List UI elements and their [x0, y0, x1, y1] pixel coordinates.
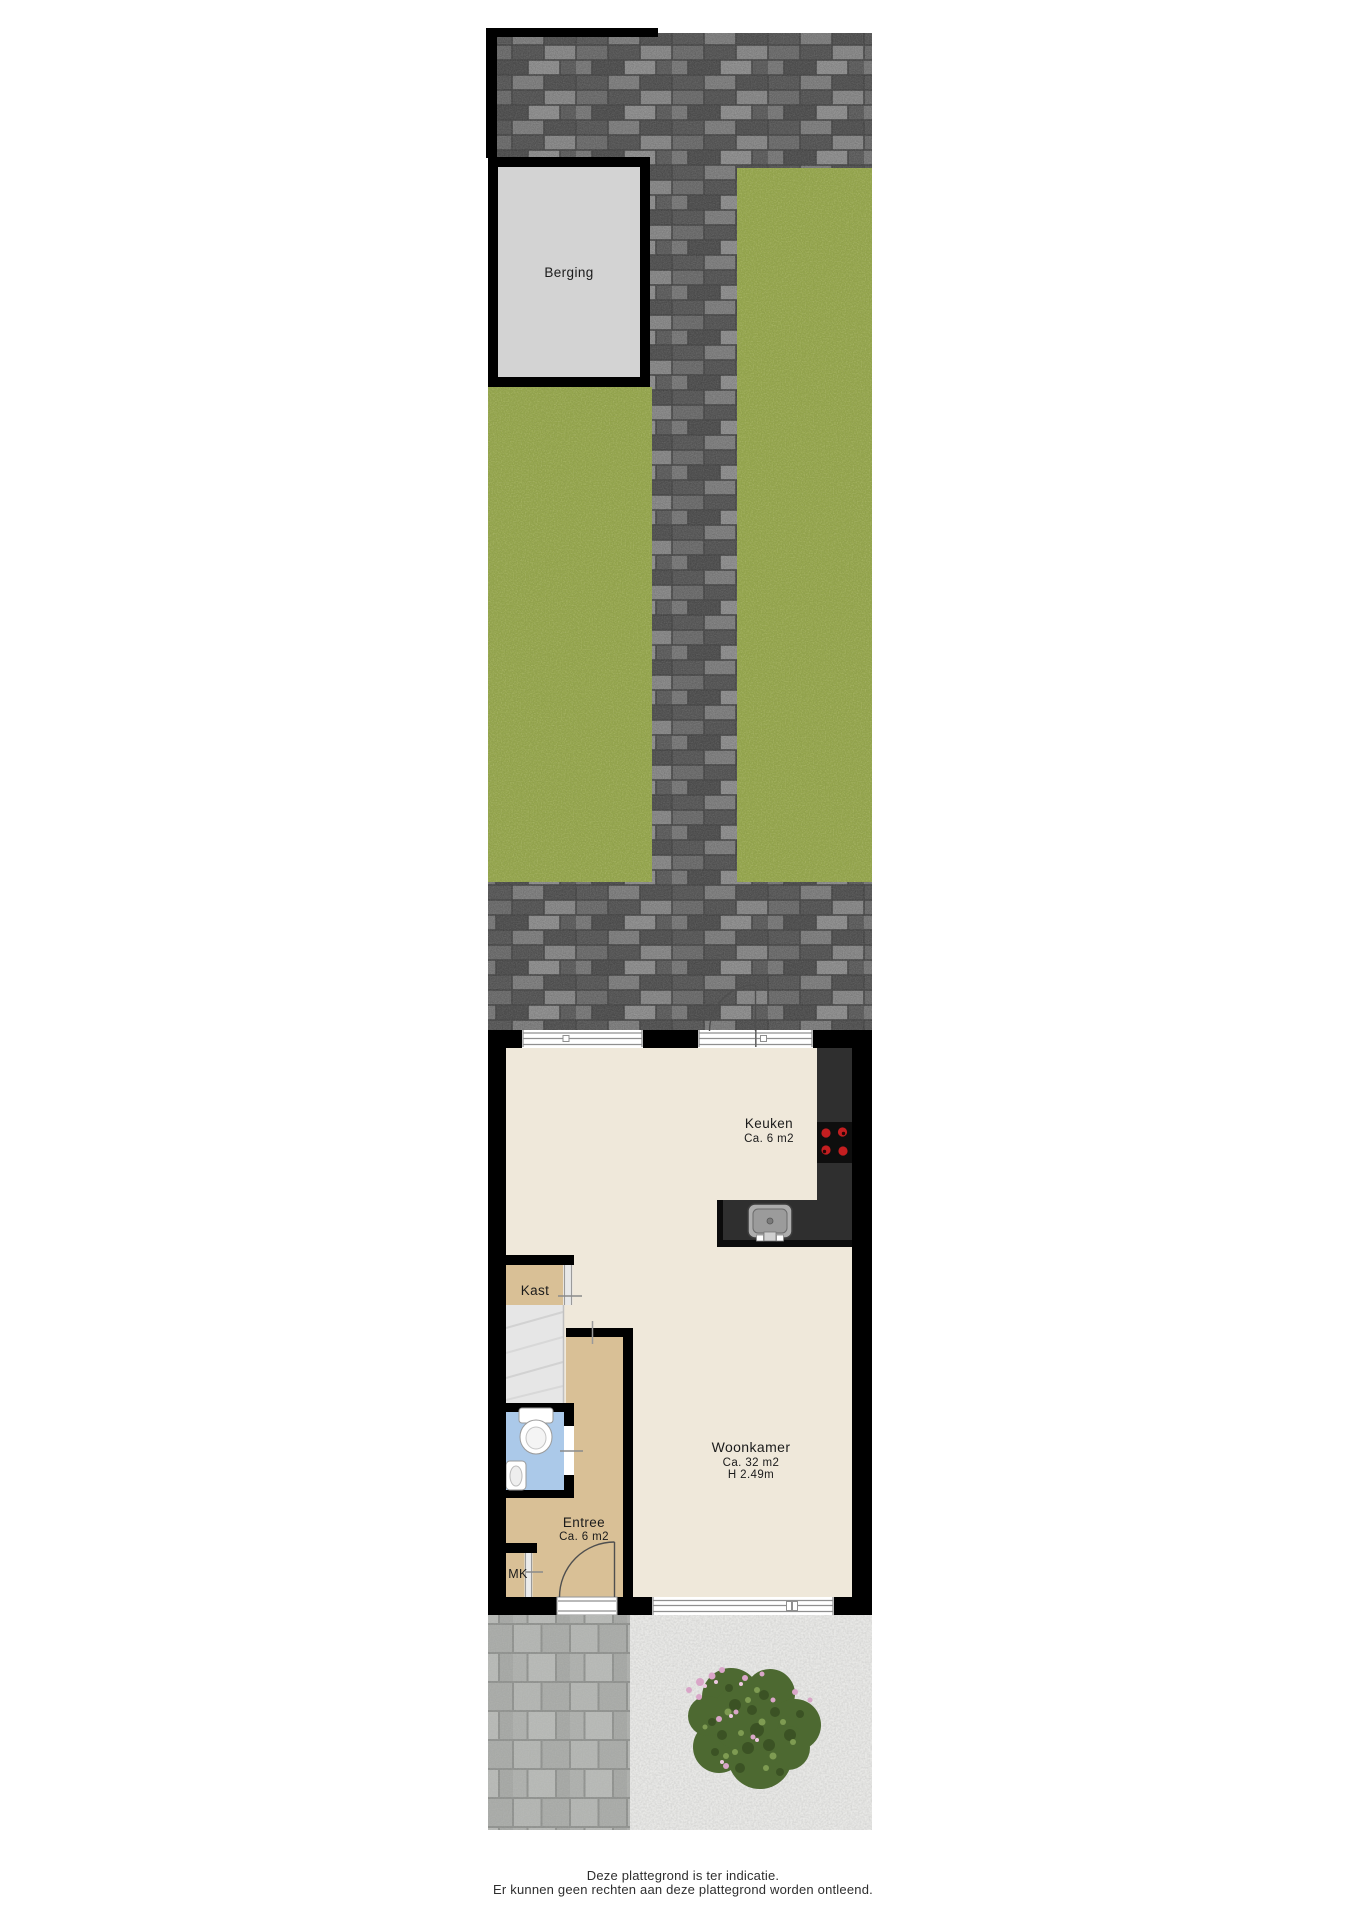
- kitchen-area: Ca. 6 m2: [744, 1133, 794, 1145]
- floorplan-svg: Berging: [0, 0, 1358, 1920]
- closet-label: Kast: [521, 1283, 550, 1298]
- lawn-left: [488, 387, 652, 882]
- counter-edge-left: [717, 1200, 723, 1247]
- garden-wall-top: [486, 28, 658, 37]
- grass-right-texture2: [737, 168, 872, 882]
- hallway-area: Ca. 6 m2: [559, 1531, 609, 1543]
- kitchen-label: Keuken: [745, 1116, 793, 1131]
- back-garden: Berging: [486, 28, 872, 1030]
- closet-wall-top: [506, 1255, 574, 1265]
- rear-window: [522, 1030, 643, 1047]
- house: Kast Entree Ca. 6 m2: [488, 985, 872, 1615]
- living-room-label: Woonkamer: [712, 1439, 791, 1455]
- meter-cupboard-label: MK: [508, 1567, 528, 1581]
- meter-cupboard-wall: [506, 1543, 537, 1553]
- house-wall-bottom-2: [617, 1597, 652, 1615]
- hallway-label: Entree: [563, 1515, 605, 1530]
- toilet-wall-bottom: [506, 1490, 574, 1498]
- house-wall-top-1: [490, 1030, 522, 1048]
- disclaimer: Deze plattegrond is ter indicatie. Er ku…: [493, 1868, 873, 1897]
- toilet-room: [506, 1403, 583, 1498]
- house-wall-top-3: [813, 1030, 872, 1048]
- shed: Berging: [488, 157, 650, 387]
- living-room-area: Ca. 32 m2: [723, 1457, 780, 1469]
- house-wall-bottom-1: [488, 1597, 557, 1615]
- floorplan-page: Berging: [0, 0, 1358, 1920]
- sidewalk-texture: [488, 1615, 630, 1830]
- front-yard: [488, 1615, 872, 1830]
- toilet-wall-right-upper: [564, 1403, 574, 1426]
- counter-edge-bottom: [717, 1240, 853, 1247]
- closet-room: Kast: [506, 1255, 582, 1305]
- disclaimer-line1: Deze plattegrond is ter indicatie.: [587, 1868, 780, 1883]
- living-hall-wall: [623, 1328, 633, 1597]
- garden-wall-left: [486, 28, 497, 158]
- toilet-icon: [519, 1408, 553, 1454]
- disclaimer-line2: Er kunnen geen rechten aan deze plattegr…: [493, 1882, 873, 1897]
- washbasin-icon: [506, 1461, 526, 1490]
- shed-label: Berging: [544, 265, 593, 280]
- front-window: [652, 1597, 834, 1615]
- house-wall-top-2: [643, 1030, 698, 1048]
- lawn-right: [737, 168, 872, 882]
- kitchen-labels: Keuken Ca. 6 m2: [744, 1116, 794, 1145]
- house-wall-right: [852, 1030, 872, 1615]
- stove-icon: [817, 1122, 852, 1163]
- house-wall-bottom-3: [834, 1597, 872, 1615]
- staircase-icon: [506, 1305, 564, 1403]
- grass-left-texture2: [488, 387, 652, 882]
- sink-icon: [748, 1204, 792, 1241]
- living-room-height: H 2.49m: [728, 1469, 774, 1481]
- hallway-wall-top: [566, 1328, 627, 1337]
- house-wall-left: [488, 1030, 506, 1615]
